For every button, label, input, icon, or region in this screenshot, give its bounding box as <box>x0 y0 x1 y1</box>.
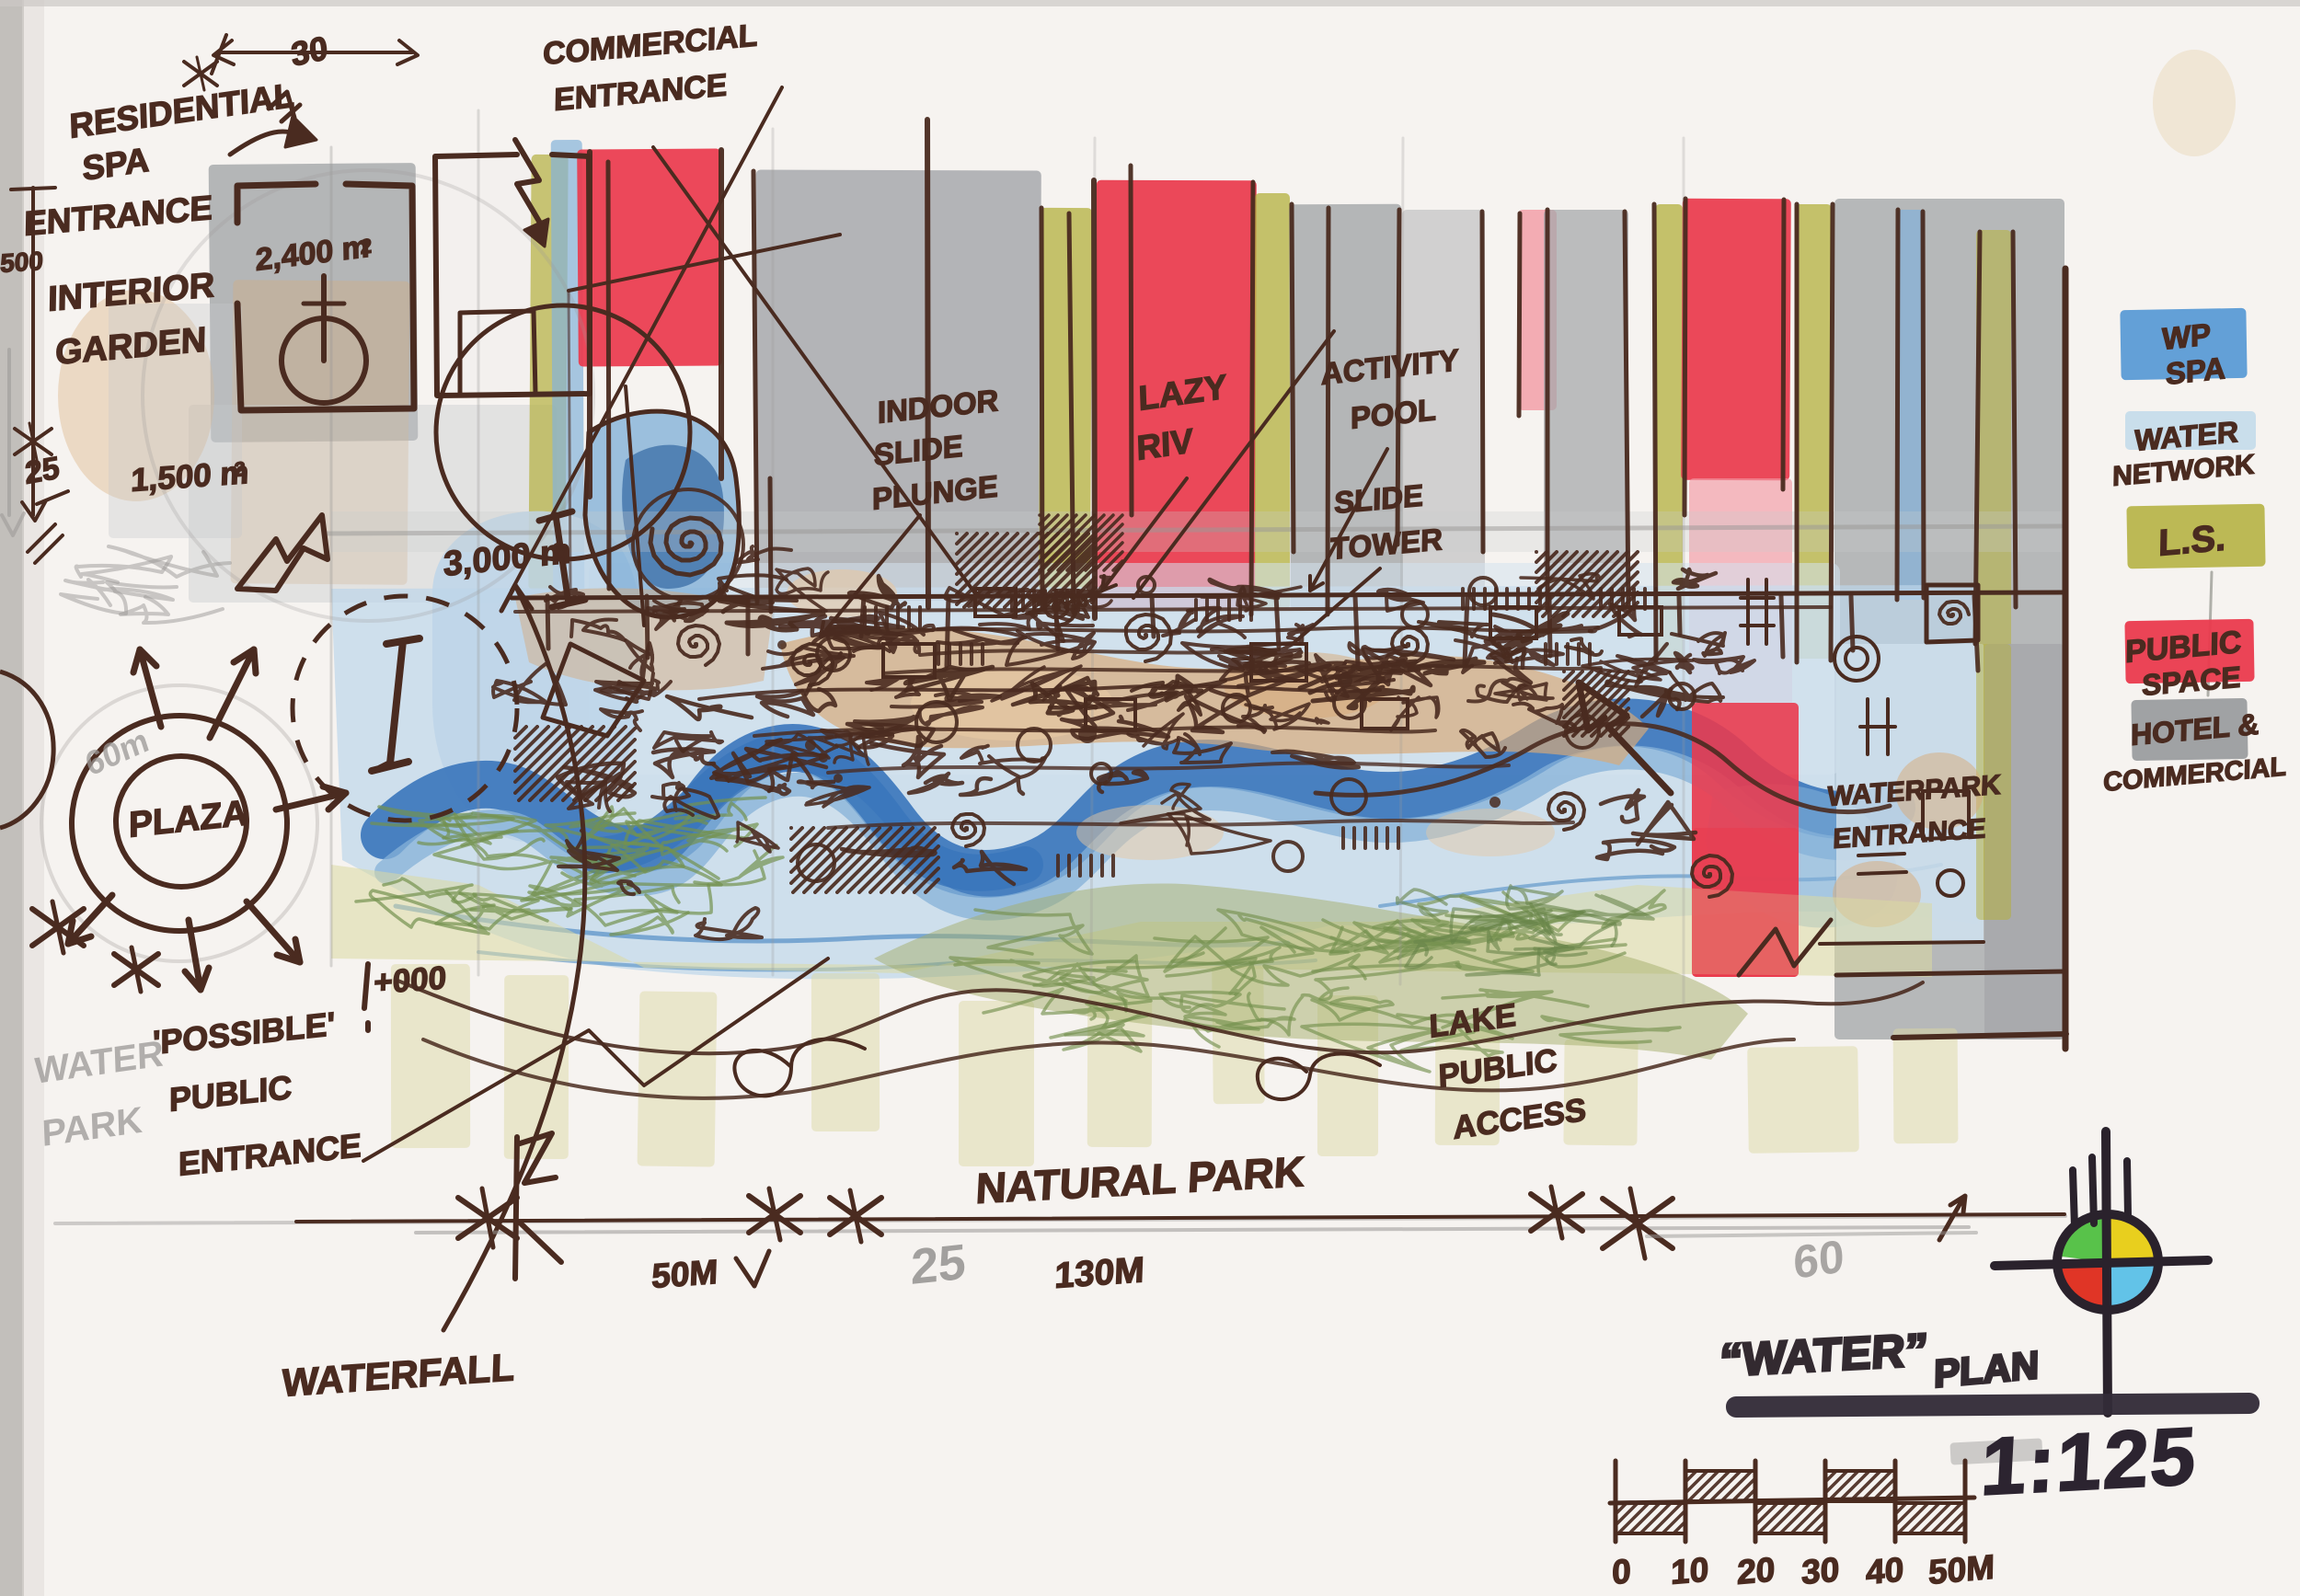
svg-text:30: 30 <box>1801 1549 1840 1591</box>
svg-text:PLAN: PLAN <box>1934 1343 2040 1395</box>
svg-text:130M: 130M <box>1054 1250 1145 1296</box>
svg-text:10: 10 <box>1671 1549 1709 1591</box>
svg-text:40: 40 <box>1866 1549 1904 1591</box>
svg-text:SPA: SPA <box>2166 351 2225 392</box>
svg-text:L.S.: L.S. <box>2158 518 2226 565</box>
svg-text:60: 60 <box>1792 1230 1845 1289</box>
svg-text:50M: 50M <box>651 1252 719 1295</box>
svg-text:30: 30 <box>290 29 329 74</box>
svg-text:25: 25 <box>24 450 61 491</box>
svg-text:20: 20 <box>1737 1549 1776 1591</box>
svg-text:WP: WP <box>2162 317 2211 357</box>
svg-text:500: 500 <box>0 247 43 278</box>
svg-text:25: 25 <box>911 1234 966 1295</box>
svg-text:50M: 50M <box>1928 1547 1995 1591</box>
svg-text:+000: +000 <box>374 959 447 1001</box>
svg-text:2: 2 <box>234 457 246 481</box>
svg-text:1:125: 1:125 <box>1979 1410 2200 1512</box>
svg-text:2: 2 <box>361 234 373 258</box>
svg-text:0: 0 <box>1612 1551 1631 1591</box>
svg-text:RIV: RIV <box>1136 420 1194 467</box>
svg-text:2: 2 <box>552 539 564 565</box>
